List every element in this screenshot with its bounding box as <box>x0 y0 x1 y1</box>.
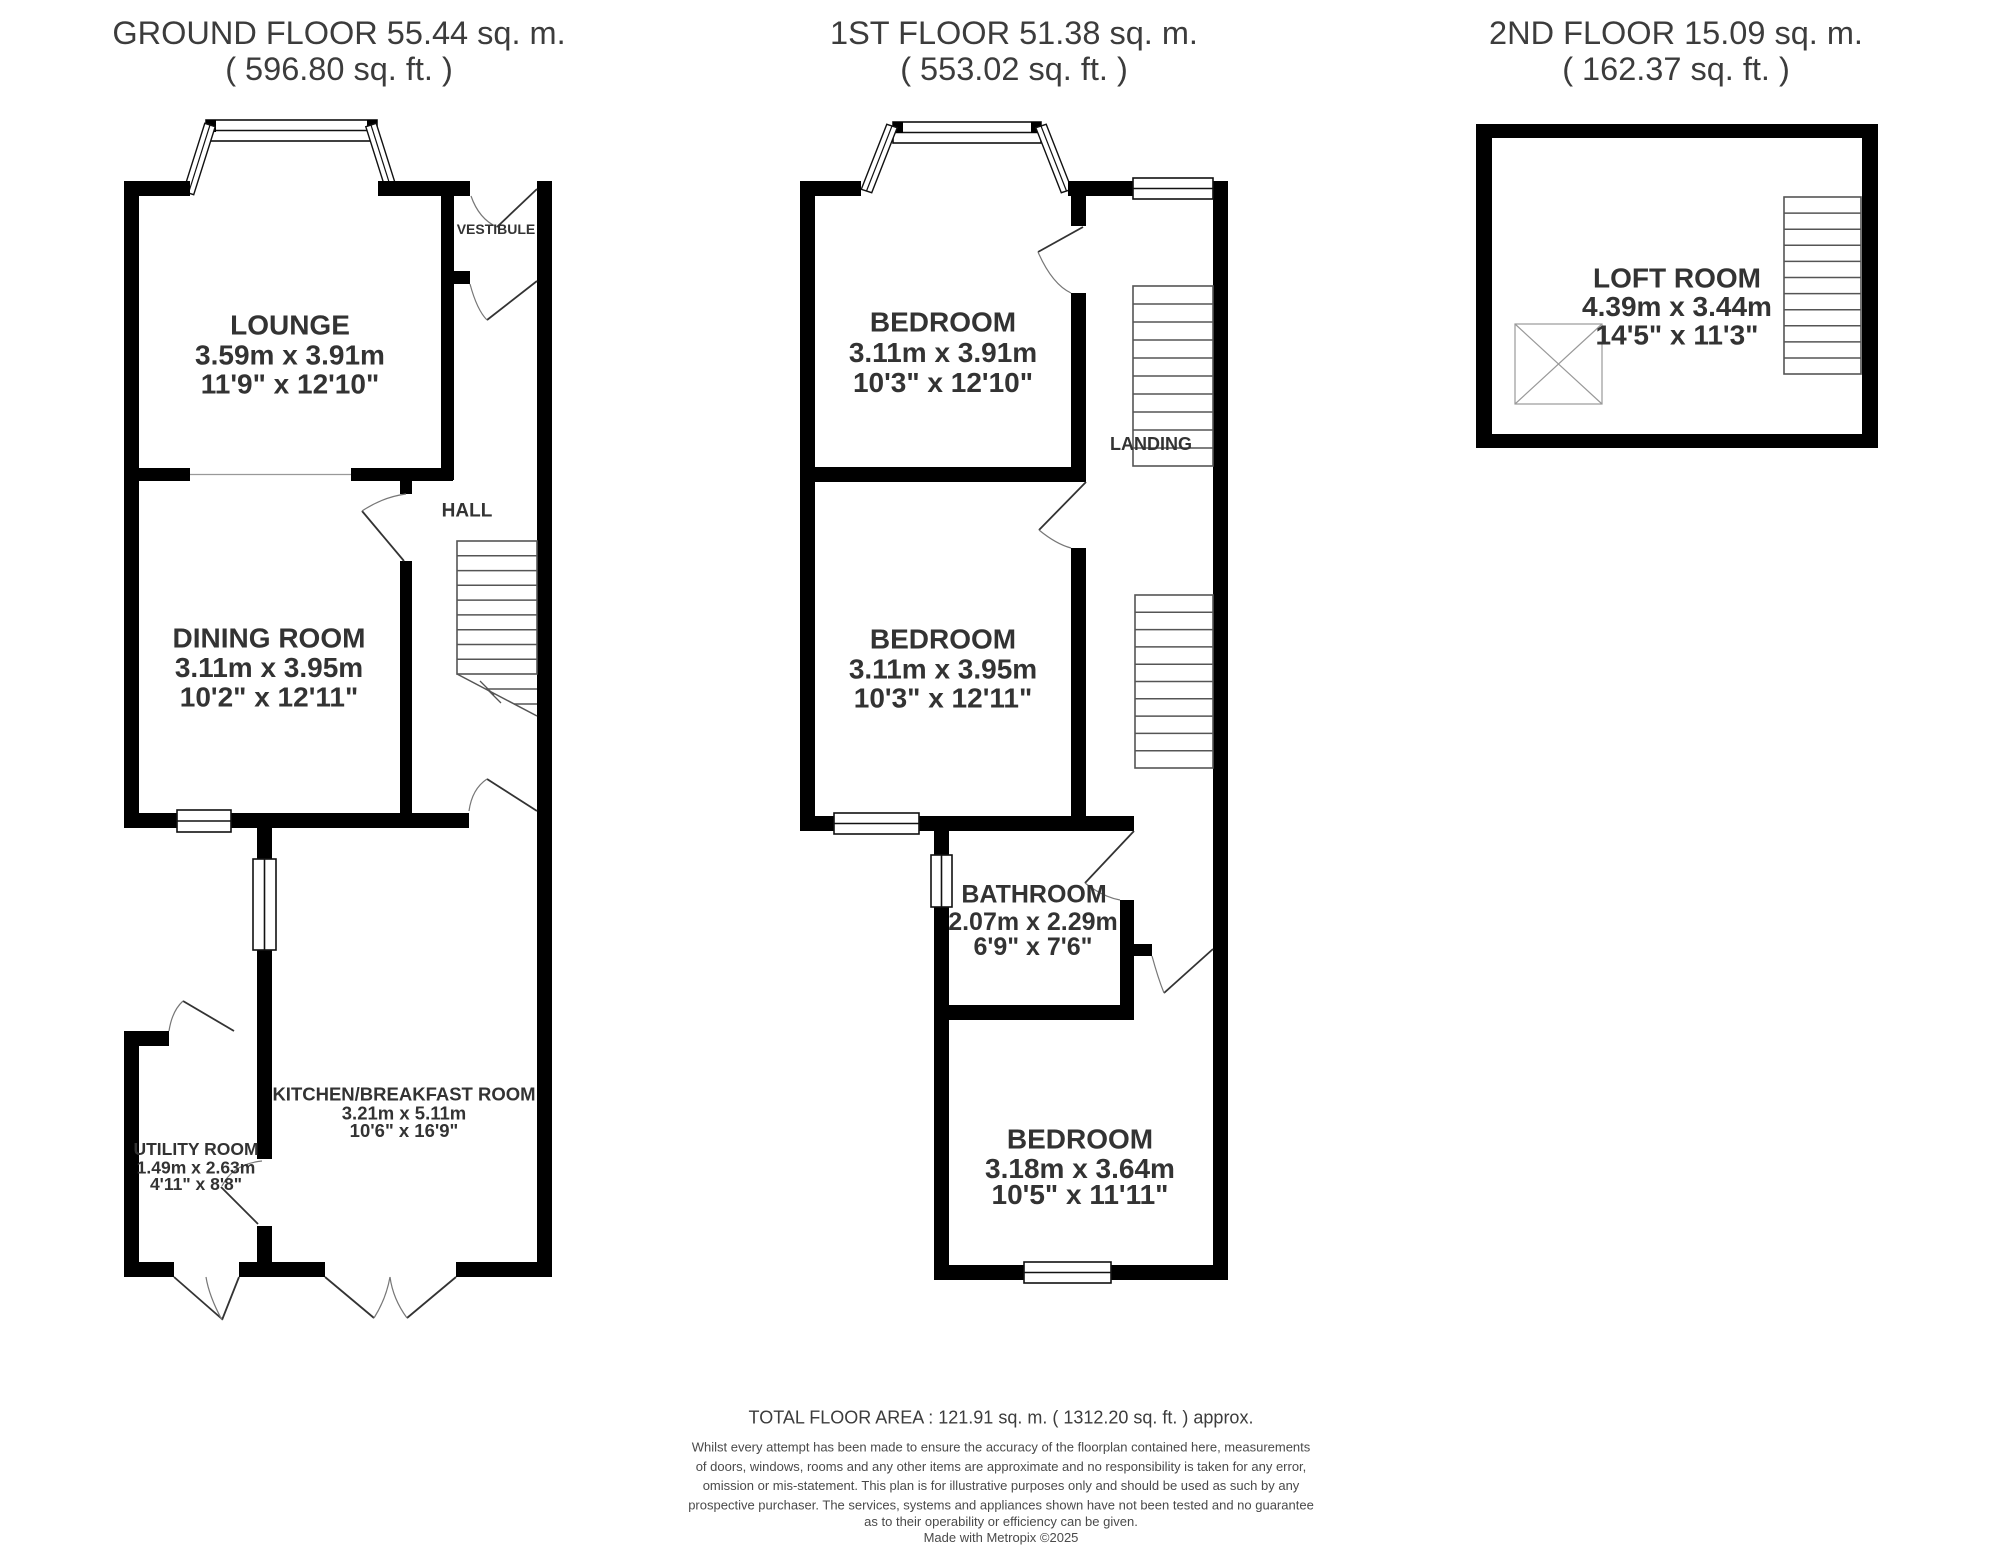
svg-text:( 553.02 sq. ft. ): ( 553.02 sq. ft. ) <box>900 51 1128 87</box>
svg-text:4.39m x 3.44m: 4.39m x 3.44m <box>1582 291 1772 322</box>
svg-text:3.11m x 3.95m: 3.11m x 3.95m <box>849 654 1037 685</box>
svg-text:10'6" x 16'9": 10'6" x 16'9" <box>350 1120 459 1141</box>
svg-text:Made with Metropix ©2025: Made with Metropix ©2025 <box>924 1530 1079 1545</box>
svg-text:DINING ROOM: DINING ROOM <box>173 623 366 654</box>
svg-text:2.07m x 2.29m: 2.07m x 2.29m <box>948 908 1118 936</box>
svg-text:4'11" x 8'8": 4'11" x 8'8" <box>150 1174 242 1194</box>
svg-text:14'5" x 11'3": 14'5" x 11'3" <box>1596 320 1759 351</box>
svg-text:omission or mis-statement. Thi: omission or mis-statement. This plan is … <box>703 1478 1300 1493</box>
svg-text:1ST FLOOR 51.38 sq. m.: 1ST FLOOR 51.38 sq. m. <box>830 15 1198 51</box>
svg-text:GROUND FLOOR 55.44 sq. m.: GROUND FLOOR 55.44 sq. m. <box>112 15 565 51</box>
svg-text:BATHROOM: BATHROOM <box>961 881 1106 909</box>
svg-text:3.59m x 3.91m: 3.59m x 3.91m <box>195 340 385 371</box>
svg-text:LOUNGE: LOUNGE <box>230 310 350 341</box>
svg-text:3.11m x 3.95m: 3.11m x 3.95m <box>175 652 363 683</box>
svg-text:10'5" x 11'11": 10'5" x 11'11" <box>992 1179 1169 1210</box>
svg-text:3.11m x 3.91m: 3.11m x 3.91m <box>849 337 1037 368</box>
svg-text:10'3" x 12'10": 10'3" x 12'10" <box>853 367 1033 398</box>
svg-text:11'9" x 12'10": 11'9" x 12'10" <box>201 369 379 400</box>
svg-text:LOFT ROOM: LOFT ROOM <box>1593 263 1761 294</box>
svg-text:BEDROOM: BEDROOM <box>870 624 1016 655</box>
svg-text:BEDROOM: BEDROOM <box>1007 1124 1153 1155</box>
svg-text:prospective purchaser. The ser: prospective purchaser. The services, sys… <box>688 1497 1314 1512</box>
svg-text:HALL: HALL <box>442 501 493 522</box>
svg-text:VESTIBULE: VESTIBULE <box>457 221 536 237</box>
svg-text:TOTAL FLOOR AREA : 121.91 sq.: TOTAL FLOOR AREA : 121.91 sq. m. ( 1312.… <box>749 1408 1254 1428</box>
svg-text:2ND FLOOR 15.09 sq. m.: 2ND FLOOR 15.09 sq. m. <box>1489 15 1863 51</box>
svg-text:UTILITY ROOM: UTILITY ROOM <box>133 1139 258 1159</box>
svg-text:as to their operability or eff: as to their operability or efficiency ca… <box>864 1514 1138 1529</box>
svg-text:KITCHEN/BREAKFAST ROOM: KITCHEN/BREAKFAST ROOM <box>272 1084 535 1105</box>
svg-text:6'9" x 7'6": 6'9" x 7'6" <box>973 933 1092 961</box>
svg-text:10'2" x 12'11": 10'2" x 12'11" <box>180 682 358 713</box>
svg-text:10'3" x 12'11": 10'3" x 12'11" <box>854 683 1032 714</box>
svg-text:LANDING: LANDING <box>1110 434 1192 454</box>
svg-text:( 162.37 sq. ft. ): ( 162.37 sq. ft. ) <box>1562 51 1790 87</box>
svg-text:of doors, windows, rooms and a: of doors, windows, rooms and any other i… <box>696 1459 1307 1474</box>
svg-text:BEDROOM: BEDROOM <box>870 307 1016 338</box>
svg-text:Whilst every attempt has been: Whilst every attempt has been made to en… <box>692 1440 1311 1455</box>
svg-text:( 596.80 sq. ft. ): ( 596.80 sq. ft. ) <box>225 51 453 87</box>
